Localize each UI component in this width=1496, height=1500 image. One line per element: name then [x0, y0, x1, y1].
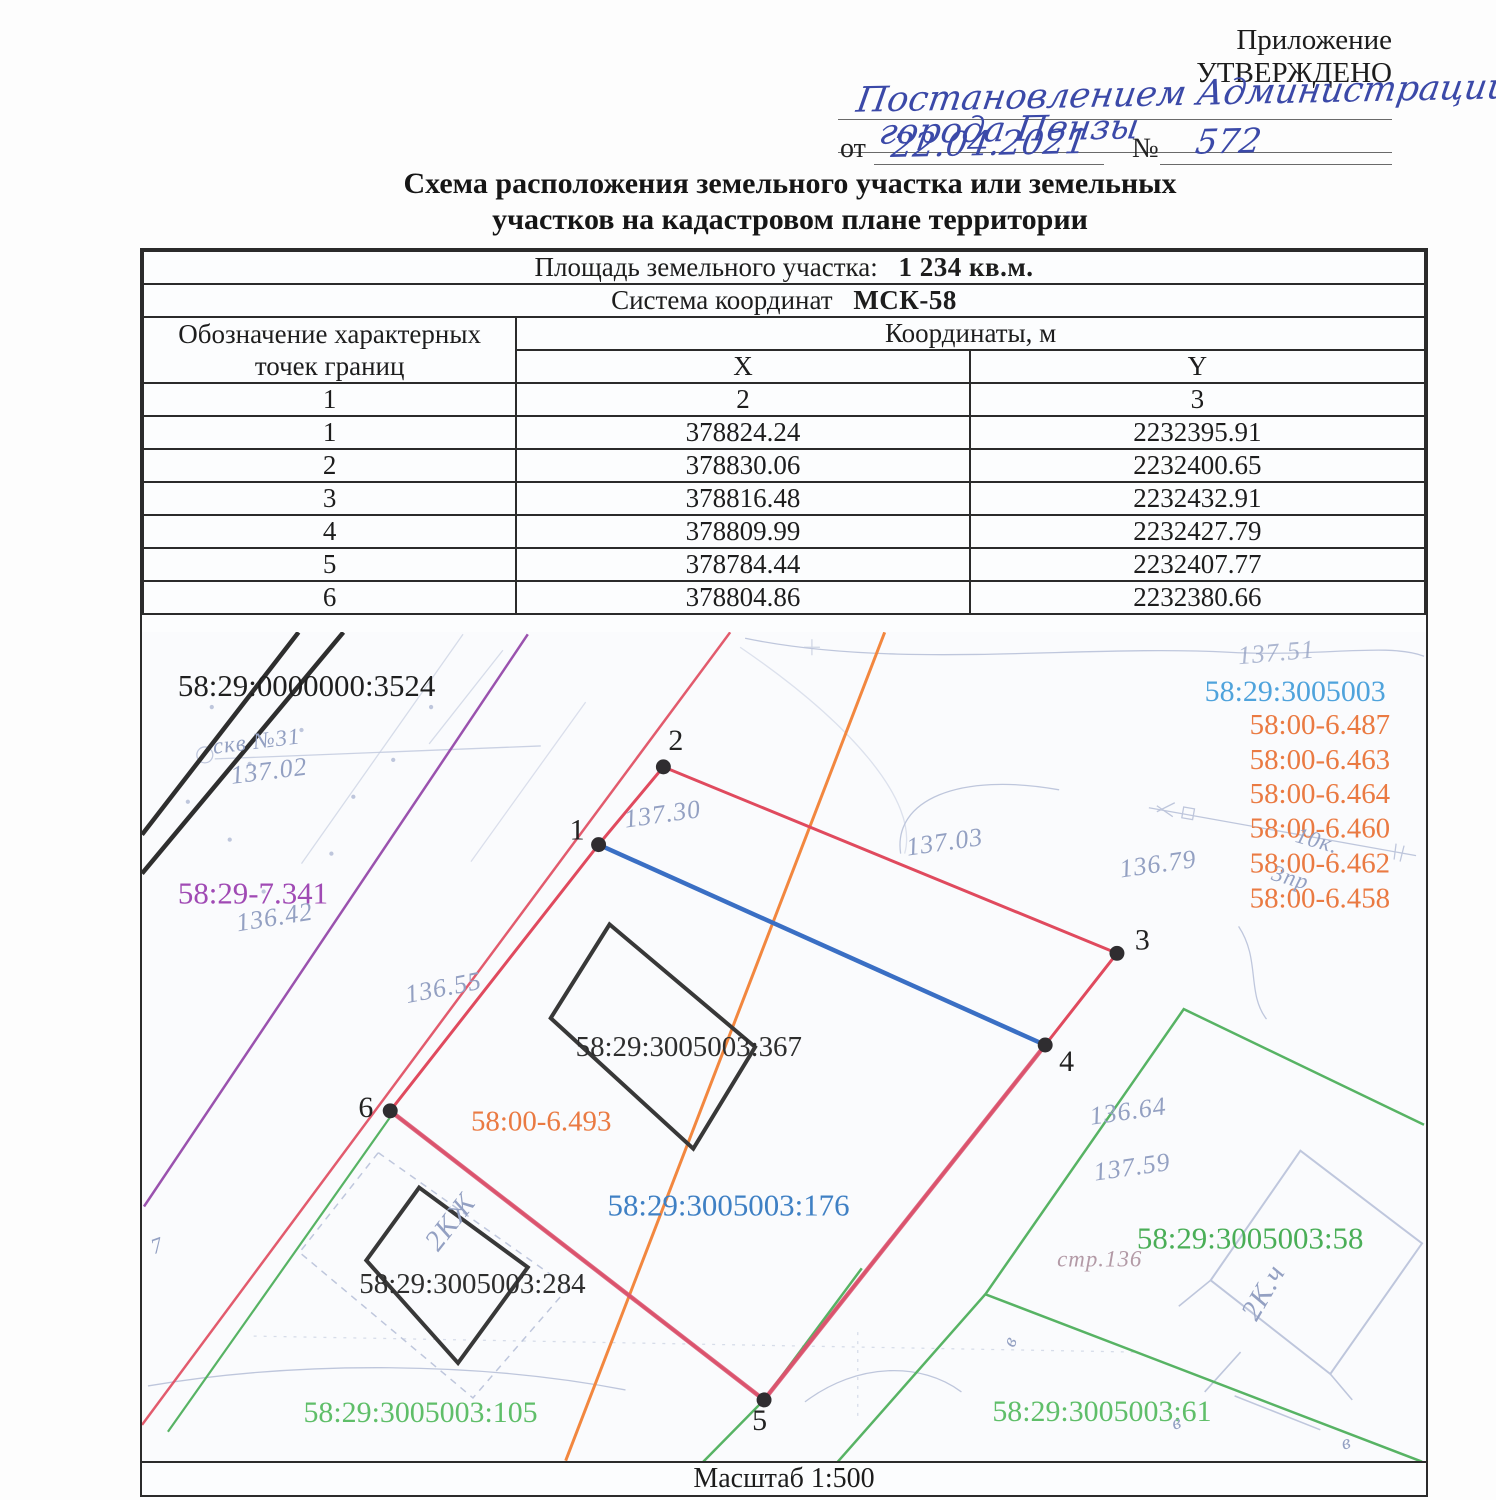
point-4-dot	[1038, 1038, 1053, 1053]
mark-2kzh: 2КЖ	[418, 1187, 482, 1257]
label-building-284: 58:29:3005003:284	[359, 1268, 585, 1300]
point-6-label: 6	[358, 1091, 373, 1124]
table-row: 1378824.242232395.91	[143, 416, 1425, 449]
cross-tick-icon	[804, 639, 820, 655]
label-zone-6464: 58:00-6.464	[1250, 778, 1390, 810]
label-zone-6463: 58:00-6.463	[1250, 744, 1390, 776]
underline-date	[874, 164, 1104, 165]
survey-curve-mid	[740, 647, 906, 853]
green-branch-line	[838, 1294, 986, 1461]
x-column-header: X	[516, 350, 969, 383]
title-line1: Схема расположения земельного участка ил…	[140, 166, 1440, 202]
label-zone-6458: 58:00-6.458	[1250, 882, 1390, 914]
mark-13751: 137.51	[1237, 635, 1316, 671]
speckle	[210, 706, 213, 709]
speckle	[392, 758, 395, 761]
mark-str136: стр.136	[1057, 1246, 1142, 1271]
label-parcel-105: 58:29:3005003:105	[303, 1396, 537, 1429]
label-parcel-176: 58:29:3005003:176	[608, 1187, 850, 1222]
coords-column-header: Координаты, м	[516, 317, 1425, 350]
handwritten-number: 572	[1193, 121, 1264, 162]
label-quarter-3005003: 58:29:3005003	[1205, 675, 1386, 708]
points-column-header: Обозначение характерных точек границ	[143, 317, 516, 383]
underline-number	[1160, 164, 1392, 165]
table-row: 4378809.992232427.79	[143, 515, 1425, 548]
green-line-through-point5	[703, 1268, 862, 1461]
scale-row: Масштаб 1:500	[142, 1461, 1426, 1495]
cadastral-map: 1 2 3 4 5 6 58:29:0000000:3524 58:29-7.3…	[142, 632, 1426, 1463]
y-column-header: Y	[970, 350, 1425, 383]
table-row: 2378830.062232400.65	[143, 449, 1425, 482]
mark-13759: 137.59	[1092, 1147, 1173, 1186]
label-quarter-3524: 58:29:0000000:3524	[178, 668, 435, 703]
mark-13655: 136.55	[403, 966, 484, 1009]
index-row: 1 2 3	[143, 383, 1425, 416]
speckle	[352, 795, 355, 798]
label-parcel-58: 58:29:3005003:58	[1137, 1220, 1364, 1255]
coordinate-system-row: Система координат МСК-58	[143, 284, 1425, 317]
area-value: 1 234 кв.м.	[884, 252, 1033, 282]
scheme-sheet: Площадь земельного участка: 1 234 кв.м. …	[140, 248, 1428, 1497]
document-page: Приложение УТВЕРЖДЕНО Постановлением Адм…	[0, 0, 1496, 1500]
speckle	[430, 706, 433, 709]
point-1-dot	[591, 837, 606, 852]
point-6-dot	[383, 1103, 398, 1118]
handwritten-date: 22.04.2021	[889, 122, 1091, 166]
point-2-dot	[656, 759, 671, 774]
point-5-label: 5	[752, 1404, 767, 1437]
survey-square-mark	[1182, 807, 1195, 820]
point-1-label: 1	[570, 814, 585, 847]
coordinate-system-value: МСК-58	[839, 285, 957, 315]
label-zone-6493: 58:00-6.493	[471, 1106, 611, 1138]
table-row: 6378804.862232380.66	[143, 581, 1425, 614]
title-line2: участков на кадастровом плане территории	[140, 202, 1440, 238]
table-header-row: Обозначение характерных точек границ Коо…	[143, 317, 1425, 350]
scale-label: Масштаб 1:500	[693, 1463, 874, 1494]
speckle	[186, 800, 189, 803]
speckle	[228, 838, 231, 841]
label-building-367: 58:29:3005003:367	[576, 1031, 802, 1063]
area-label: Площадь земельного участка:	[535, 252, 878, 282]
document-title: Схема расположения земельного участка ил…	[140, 166, 1440, 238]
contour-wave-bottom-left	[148, 1368, 626, 1390]
coordinates-table: Площадь земельного участка: 1 234 кв.м. …	[142, 250, 1426, 615]
annex-label: Приложение	[1000, 24, 1392, 57]
mark-13703: 137.03	[904, 822, 985, 861]
section-line-1-4	[599, 845, 1046, 1045]
survey-diagonal-3	[471, 702, 586, 862]
from-label: от	[840, 133, 866, 165]
mark-b-1: в	[998, 1333, 1022, 1350]
point-3-label: 3	[1135, 923, 1150, 956]
survey-diagonal-2	[429, 650, 503, 744]
point-2-label: 2	[668, 724, 683, 757]
point-4-label: 4	[1059, 1045, 1074, 1078]
building-58-outline	[1211, 1151, 1422, 1374]
speckle	[330, 852, 333, 855]
coordinate-system-label: Система координат	[611, 285, 832, 315]
point-3-dot	[1109, 946, 1124, 961]
cadastral-map-area: 1 2 3 4 5 6 58:29:0000000:3524 58:29-7.3…	[142, 632, 1426, 1463]
mark-2k: 2К.ч	[1235, 1259, 1292, 1326]
mark-13679: 136.79	[1118, 844, 1199, 883]
number-sign-label: №	[1132, 133, 1159, 165]
table-row: 5378784.442232407.77	[143, 548, 1425, 581]
contour-arc-bottom	[805, 1371, 962, 1402]
label-zone-6487: 58:00-6.487	[1250, 709, 1390, 741]
area-row: Площадь земельного участка: 1 234 кв.м.	[143, 251, 1425, 284]
contour-squiggle-right	[1239, 926, 1267, 1019]
point-labels: 1 2 3 4 5 6	[358, 724, 1150, 1437]
speckle	[300, 728, 303, 731]
mark-13664: 136.64	[1088, 1091, 1169, 1130]
table-row: 3378816.482232432.91	[143, 482, 1425, 515]
mark-7: 7	[147, 1231, 167, 1259]
contour-curve-top	[745, 638, 1424, 656]
